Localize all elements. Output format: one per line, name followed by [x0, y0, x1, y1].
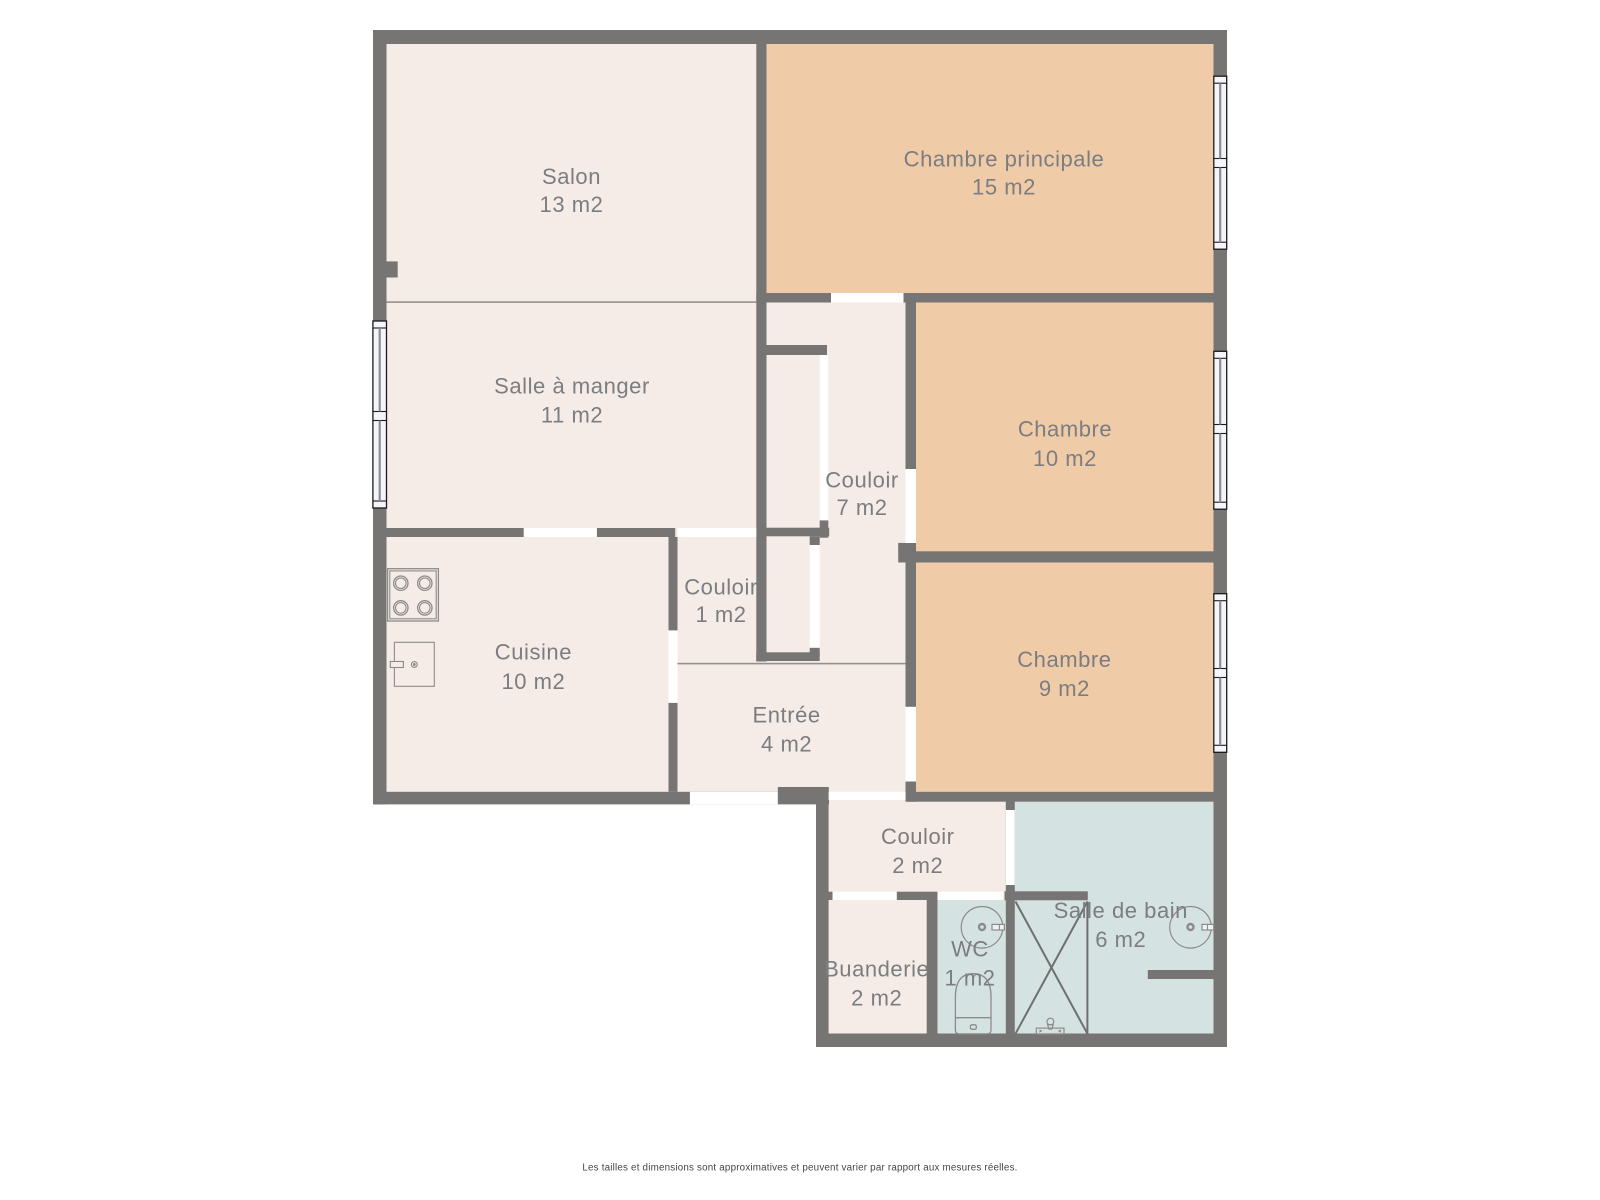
svg-text:Couloir: Couloir [825, 467, 899, 492]
svg-text:10 m2: 10 m2 [501, 669, 565, 694]
svg-text:Couloir: Couloir [684, 574, 758, 599]
svg-text:2 m2: 2 m2 [851, 985, 902, 1010]
svg-text:Salon: Salon [542, 164, 601, 189]
svg-text:Salle de bain: Salle de bain [1054, 898, 1188, 923]
svg-text:11 m2: 11 m2 [541, 402, 603, 427]
svg-text:1 m2: 1 m2 [695, 602, 746, 627]
svg-text:10 m2: 10 m2 [1033, 446, 1097, 471]
svg-text:Chambre principale: Chambre principale [904, 147, 1105, 172]
svg-text:4 m2: 4 m2 [761, 731, 812, 756]
svg-text:WC: WC [951, 937, 989, 962]
svg-text:2 m2: 2 m2 [892, 853, 943, 878]
svg-text:Chambre: Chambre [1018, 417, 1112, 442]
svg-text:7 m2: 7 m2 [836, 495, 887, 520]
svg-text:Couloir: Couloir [881, 824, 955, 849]
svg-text:Cuisine: Cuisine [495, 640, 572, 665]
svg-text:1 m2: 1 m2 [944, 965, 995, 990]
svg-text:Salle à manger: Salle à manger [494, 374, 650, 399]
svg-text:13 m2: 13 m2 [540, 192, 604, 217]
svg-text:6 m2: 6 m2 [1095, 927, 1146, 952]
svg-text:15 m2: 15 m2 [972, 175, 1036, 200]
svg-text:Entrée: Entrée [753, 703, 821, 728]
svg-text:9 m2: 9 m2 [1039, 676, 1090, 701]
svg-text:Chambre: Chambre [1017, 647, 1111, 672]
svg-text:Buanderie: Buanderie [824, 957, 929, 982]
svg-text:Les tailles et dimensions sont: Les tailles et dimensions sont approxima… [582, 1163, 1017, 1174]
